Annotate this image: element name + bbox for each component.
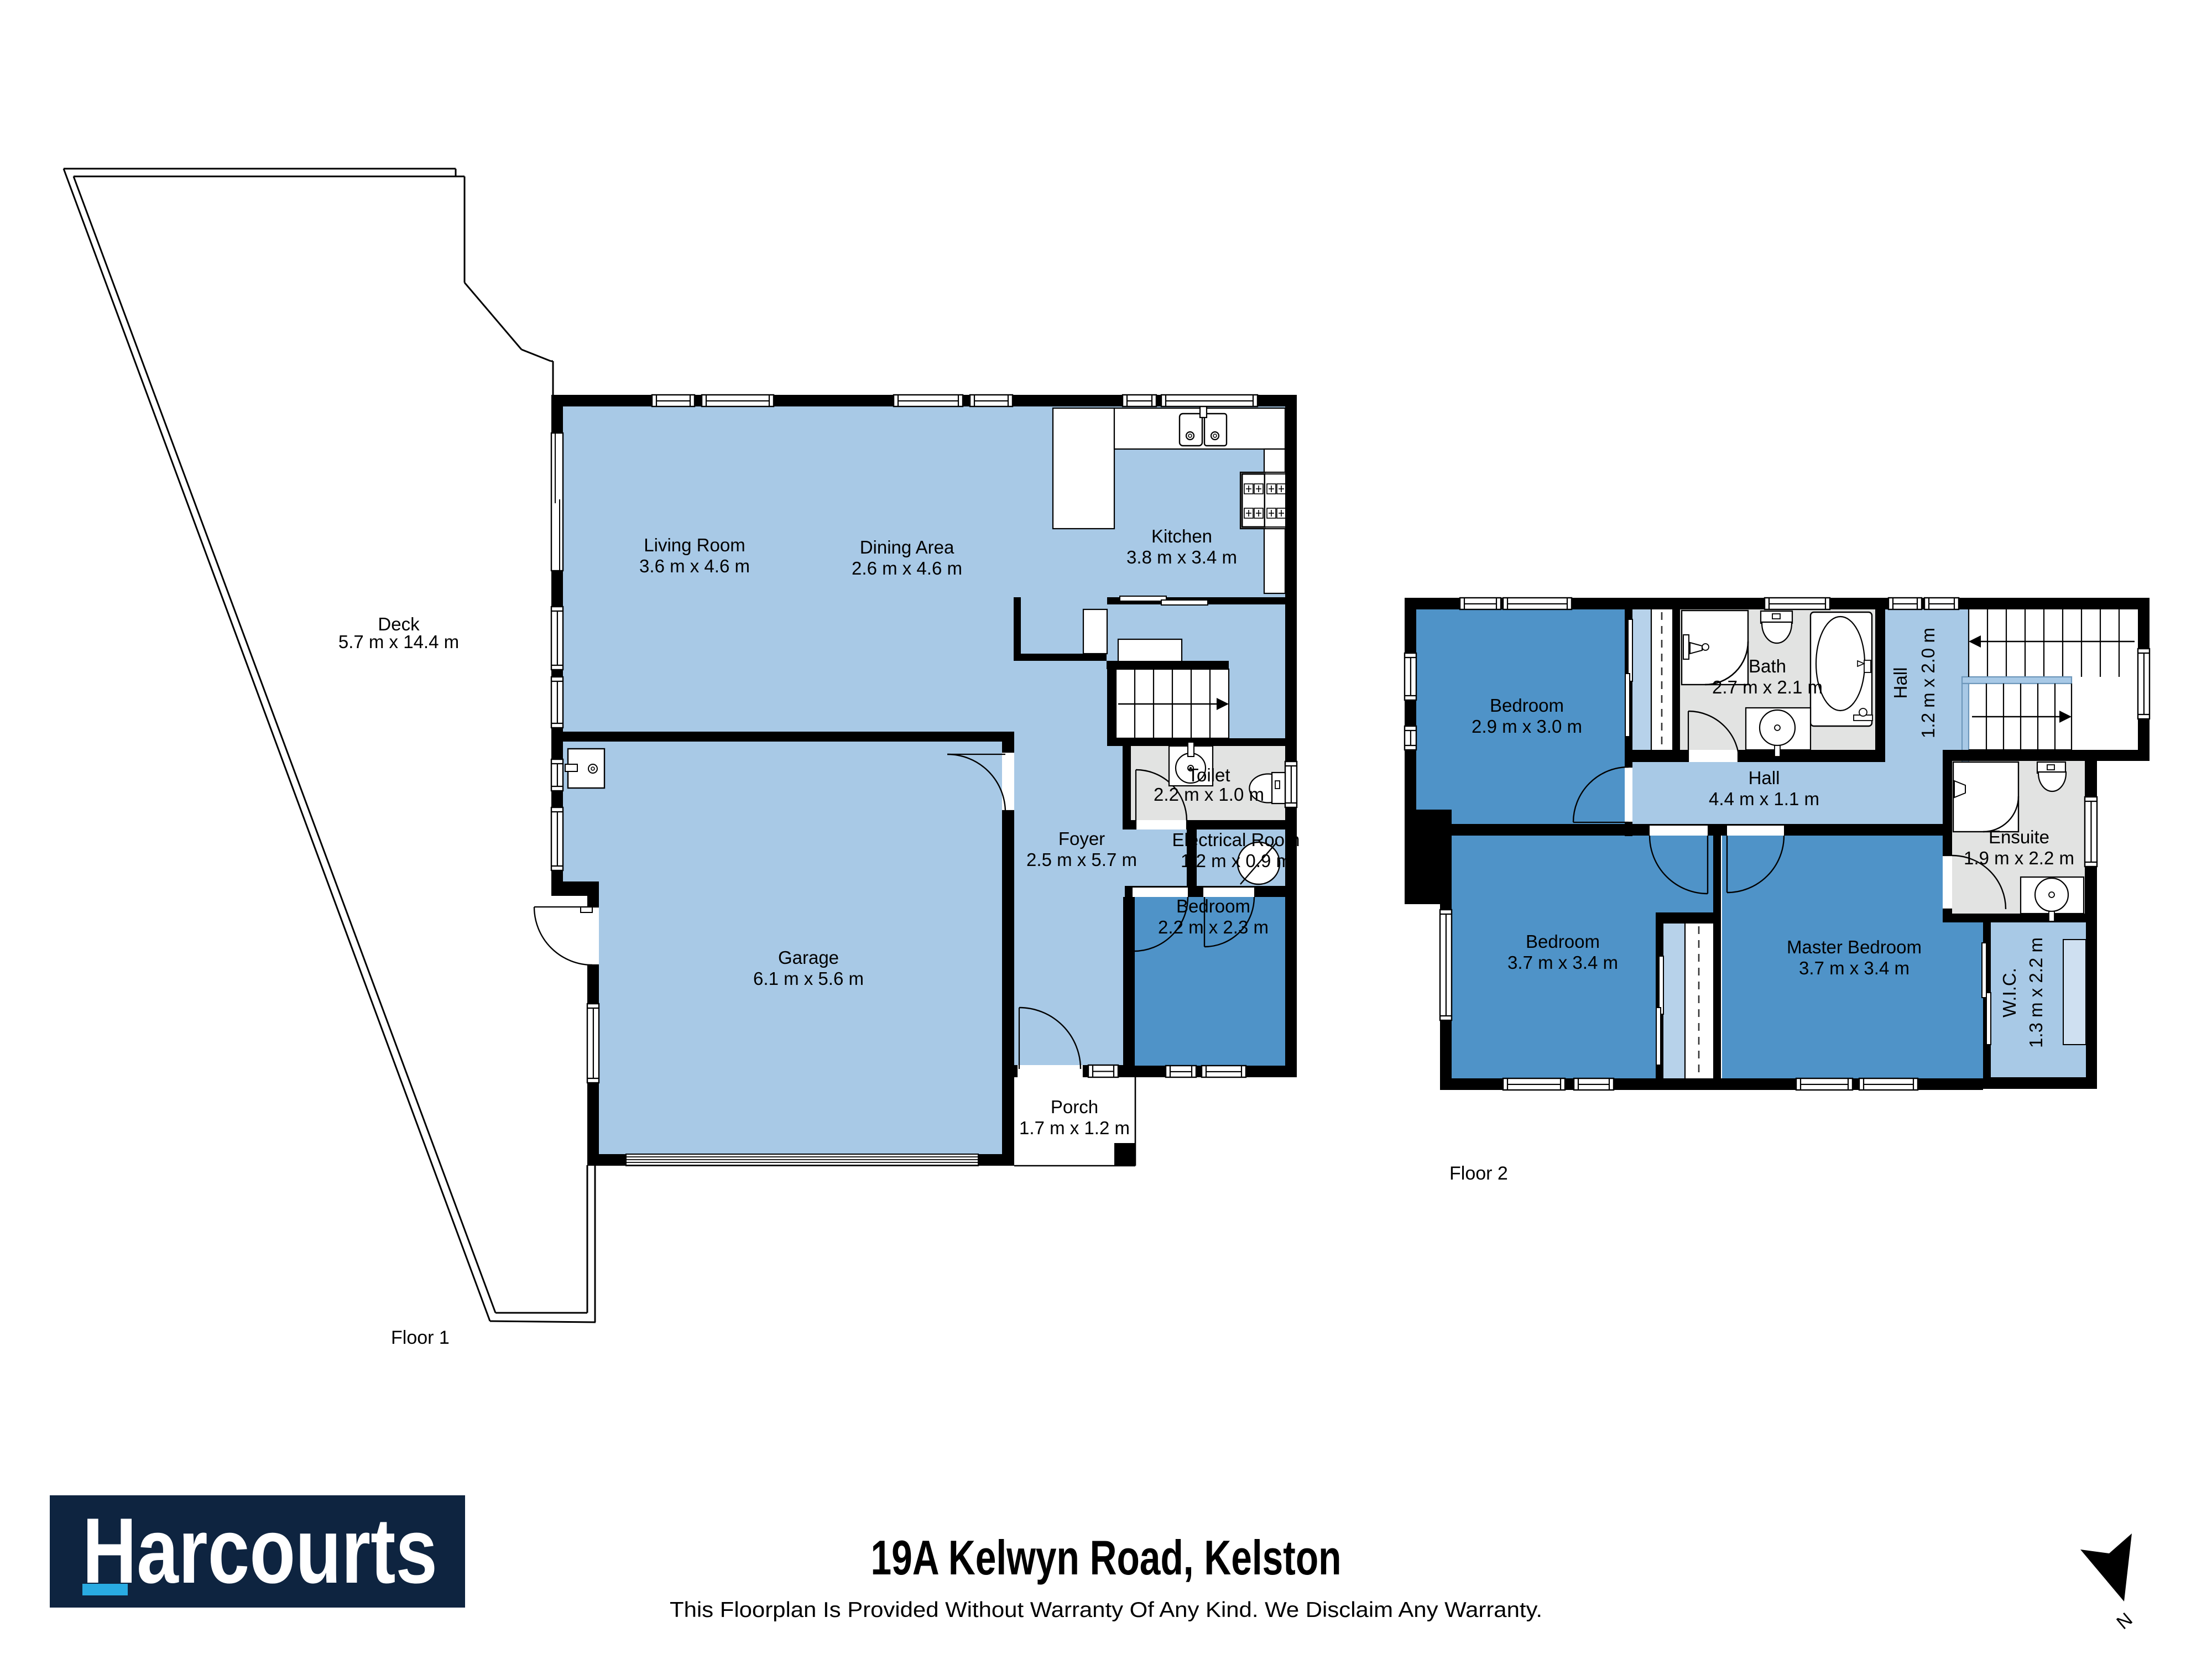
svg-text:Harcourts: Harcourts xyxy=(82,1499,437,1603)
svg-text:Dining Area: Dining Area xyxy=(860,537,954,557)
svg-text:Floor 1: Floor 1 xyxy=(391,1327,450,1348)
svg-text:2.2 m x 1.0 m: 2.2 m x 1.0 m xyxy=(1154,784,1264,805)
svg-text:3.8 m x 3.4 m: 3.8 m x 3.4 m xyxy=(1126,547,1237,567)
svg-text:5.7 m x 14.4 m: 5.7 m x 14.4 m xyxy=(338,632,459,652)
svg-text:Garage: Garage xyxy=(778,947,839,968)
svg-text:N: N xyxy=(2112,1609,2136,1634)
svg-text:Living Room: Living Room xyxy=(644,535,745,555)
svg-text:3.6 m x 4.6 m: 3.6 m x 4.6 m xyxy=(639,556,750,576)
svg-text:Kitchen: Kitchen xyxy=(1151,526,1212,546)
svg-text:1.9 m x 2.2 m: 1.9 m x 2.2 m xyxy=(1964,848,2074,868)
svg-text:Bedroom: Bedroom xyxy=(1526,931,1600,952)
svg-text:19A Kelwyn Road, Kelston: 19A Kelwyn Road, Kelston xyxy=(871,1530,1342,1585)
svg-text:This Floorplan Is Provided Wit: This Floorplan Is Provided Without Warra… xyxy=(670,1598,1542,1622)
svg-text:2.9 m x 3.0 m: 2.9 m x 3.0 m xyxy=(1472,716,1582,737)
svg-text:Porch: Porch xyxy=(1051,1097,1098,1117)
svg-text:Electrical Room: Electrical Room xyxy=(1172,830,1300,850)
svg-text:Master Bedroom: Master Bedroom xyxy=(1787,937,1922,957)
svg-text:W.I.C.: W.I.C. xyxy=(1999,968,2020,1018)
svg-text:2.7 m x 2.1 m: 2.7 m x 2.1 m xyxy=(1712,677,1823,697)
svg-text:1.2 m x 0.9 m: 1.2 m x 0.9 m xyxy=(1181,851,1291,871)
svg-text:Ensuite: Ensuite xyxy=(1989,827,2049,847)
svg-text:6.1 m x 5.6 m: 6.1 m x 5.6 m xyxy=(753,968,864,989)
svg-text:Bath: Bath xyxy=(1749,656,1786,676)
svg-text:Floor 2: Floor 2 xyxy=(1449,1163,1508,1184)
svg-text:1.2 m x 2.0 m: 1.2 m x 2.0 m xyxy=(1918,628,1938,738)
svg-text:1.3 m x 2.2 m: 1.3 m x 2.2 m xyxy=(2026,937,2046,1048)
svg-text:3.7 m x 3.4 m: 3.7 m x 3.4 m xyxy=(1799,958,1910,978)
svg-text:2.6 m x 4.6 m: 2.6 m x 4.6 m xyxy=(852,558,962,578)
svg-text:4.4 m x 1.1 m: 4.4 m x 1.1 m xyxy=(1709,789,1819,809)
svg-text:3.7 m x 3.4 m: 3.7 m x 3.4 m xyxy=(1507,952,1618,973)
svg-text:Hall: Hall xyxy=(1749,768,1780,788)
svg-text:2.5 m x 5.7 m: 2.5 m x 5.7 m xyxy=(1026,849,1137,870)
svg-text:Hall: Hall xyxy=(1890,667,1911,699)
svg-text:Bedroom: Bedroom xyxy=(1490,695,1564,716)
svg-text:Foyer: Foyer xyxy=(1058,828,1105,849)
svg-text:2.2 m x 2.3 m: 2.2 m x 2.3 m xyxy=(1158,917,1269,937)
svg-text:1.7 m x 1.2 m: 1.7 m x 1.2 m xyxy=(1019,1118,1130,1138)
svg-text:Bedroom: Bedroom xyxy=(1176,896,1250,916)
svg-text:Toilet: Toilet xyxy=(1187,765,1230,785)
